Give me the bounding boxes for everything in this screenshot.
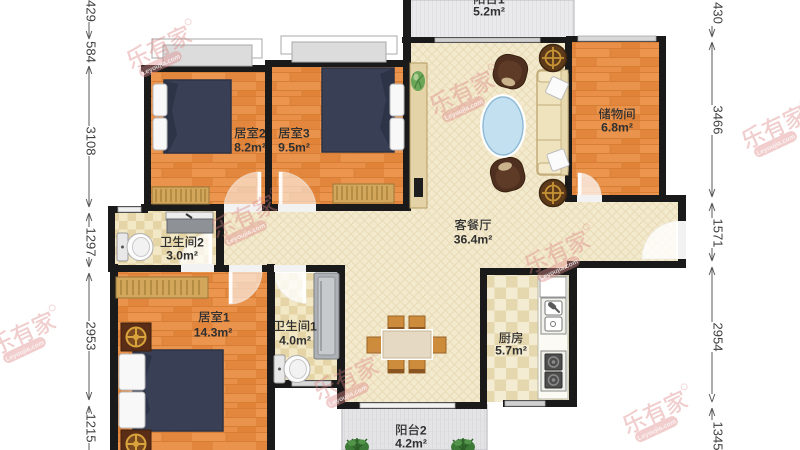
svg-text:1215: 1215 bbox=[84, 414, 99, 443]
svg-text:5.2m²: 5.2m² bbox=[473, 4, 505, 18]
svg-text:2953: 2953 bbox=[84, 322, 99, 351]
svg-text:3108: 3108 bbox=[84, 127, 99, 156]
svg-text:36.4m²: 36.4m² bbox=[454, 232, 493, 246]
svg-text:430: 430 bbox=[711, 2, 726, 24]
svg-text:1: 1 bbox=[223, 310, 230, 324]
svg-text:429: 429 bbox=[84, 0, 99, 22]
svg-text:3466: 3466 bbox=[711, 106, 726, 135]
svg-text:1297: 1297 bbox=[84, 228, 99, 257]
svg-text:3: 3 bbox=[303, 126, 310, 140]
svg-text:584: 584 bbox=[84, 41, 99, 63]
svg-text:4.0m²: 4.0m² bbox=[279, 333, 311, 347]
svg-text:2: 2 bbox=[259, 126, 266, 140]
svg-text:14.3m²: 14.3m² bbox=[194, 325, 233, 339]
svg-text:4.2m²: 4.2m² bbox=[395, 436, 427, 450]
svg-text:2: 2 bbox=[197, 235, 204, 249]
svg-text:5.7m²: 5.7m² bbox=[495, 343, 527, 357]
svg-text:1571: 1571 bbox=[711, 219, 726, 248]
svg-text:6.8m²: 6.8m² bbox=[601, 120, 633, 134]
svg-text:2954: 2954 bbox=[711, 323, 726, 352]
svg-text:9.5m²: 9.5m² bbox=[278, 140, 310, 154]
svg-text:8.2m²: 8.2m² bbox=[234, 140, 266, 154]
svg-text:1: 1 bbox=[310, 319, 317, 333]
svg-text:3.0m²: 3.0m² bbox=[166, 248, 198, 262]
svg-text:1345: 1345 bbox=[711, 422, 726, 450]
svg-text:2: 2 bbox=[420, 423, 427, 437]
